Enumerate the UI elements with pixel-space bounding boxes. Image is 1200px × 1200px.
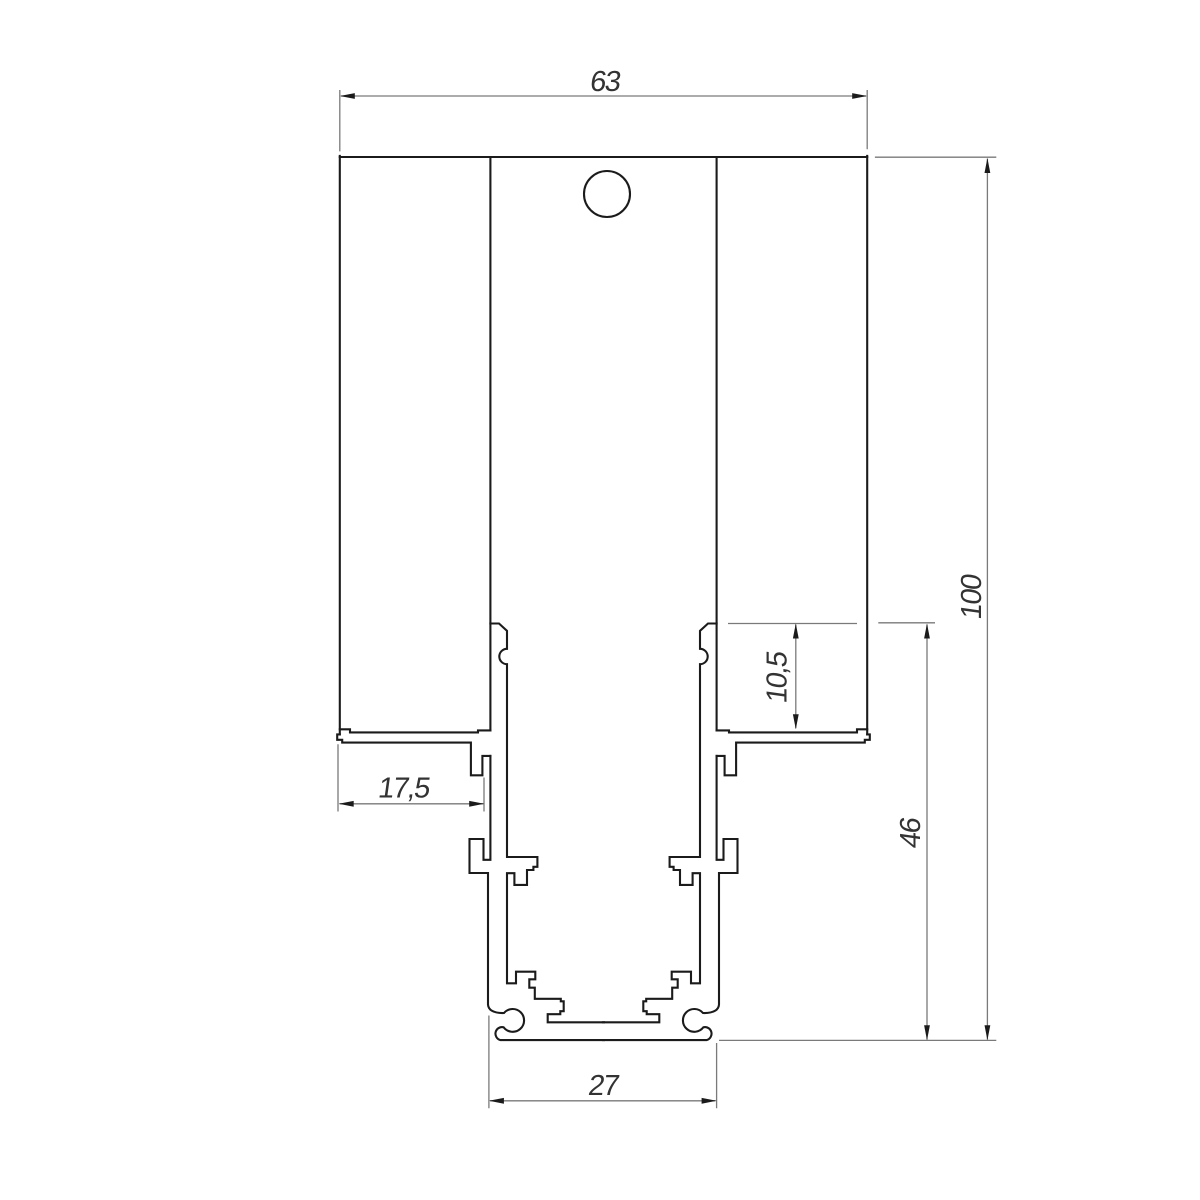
svg-text:63: 63 [588, 66, 622, 98]
svg-text:17,5: 17,5 [376, 773, 431, 805]
svg-text:27: 27 [586, 1070, 620, 1102]
svg-text:10,5: 10,5 [762, 650, 794, 705]
svg-text:46: 46 [895, 816, 927, 850]
svg-text:100: 100 [956, 572, 988, 622]
